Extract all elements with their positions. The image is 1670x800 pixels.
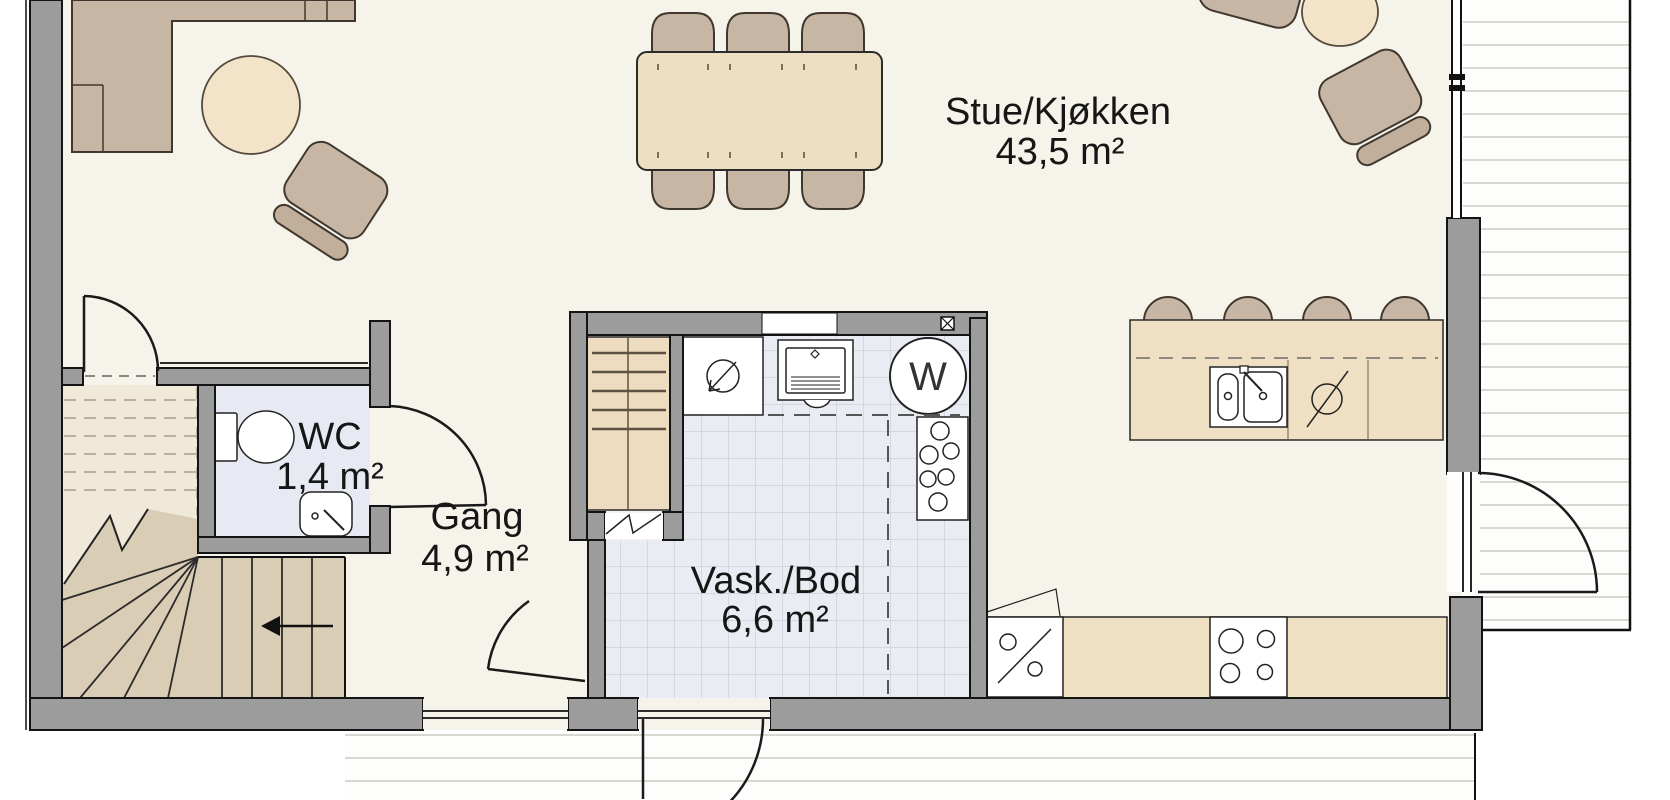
washing-machine-letter: W	[909, 355, 947, 399]
room-label-gang: Gang	[431, 496, 524, 538]
laundry-threshold	[638, 699, 770, 729]
room-label-wc: WC	[298, 416, 361, 458]
room-area-wc: 1,4 m²	[276, 456, 384, 498]
room-label-stue: Stue/Kjøkken	[945, 91, 1171, 133]
wardrobe-folding-door	[605, 513, 663, 539]
duct-symbol-icon	[941, 317, 954, 330]
round-rug	[202, 56, 300, 154]
room-area-gang: 4,9 m²	[421, 538, 529, 580]
glass-wall	[1449, 0, 1465, 218]
right-wall-corner	[1450, 597, 1482, 730]
laundry-right-wall	[970, 318, 987, 698]
bottom-wall-left	[30, 698, 423, 730]
room-area-stue: 43,5 m²	[996, 131, 1125, 173]
wardrobe	[587, 337, 670, 510]
room-area-vask: 6,6 m²	[721, 599, 829, 641]
kitchen-sink-icon	[1210, 366, 1287, 427]
wc-pillar	[370, 321, 390, 407]
room-label-vask: Vask./Bod	[691, 560, 861, 602]
pass-through	[762, 313, 837, 334]
laundry-sink-icon	[778, 340, 853, 408]
terrace-right	[1463, 0, 1631, 630]
cooktop-icon	[1210, 617, 1287, 697]
oven-icon	[985, 617, 1063, 697]
wc-bottom-wall	[198, 537, 390, 553]
pipe-manifold-icon	[917, 417, 968, 520]
kitchen-island	[1130, 320, 1443, 440]
right-wall-upper	[1447, 218, 1480, 474]
floor-plan: Stue/Kjøkken 43,5 m² WC 1,4 m² Gang 4,9 …	[0, 0, 1670, 800]
entrance-threshold	[423, 699, 568, 729]
terrace-door-threshold	[1447, 472, 1480, 592]
wc-sink-icon	[300, 492, 352, 536]
left-exterior-wall	[30, 0, 62, 730]
dining-table	[637, 52, 882, 170]
terrace-bottom	[345, 733, 1475, 800]
wc-left-wall	[198, 385, 215, 537]
bottom-wall-pier	[568, 698, 638, 730]
dryer-icon	[683, 337, 763, 415]
floor-plan-drawing: Stue/Kjøkken 43,5 m² WC 1,4 m² Gang 4,9 …	[0, 0, 1670, 800]
bottom-wall-right	[770, 698, 1482, 730]
